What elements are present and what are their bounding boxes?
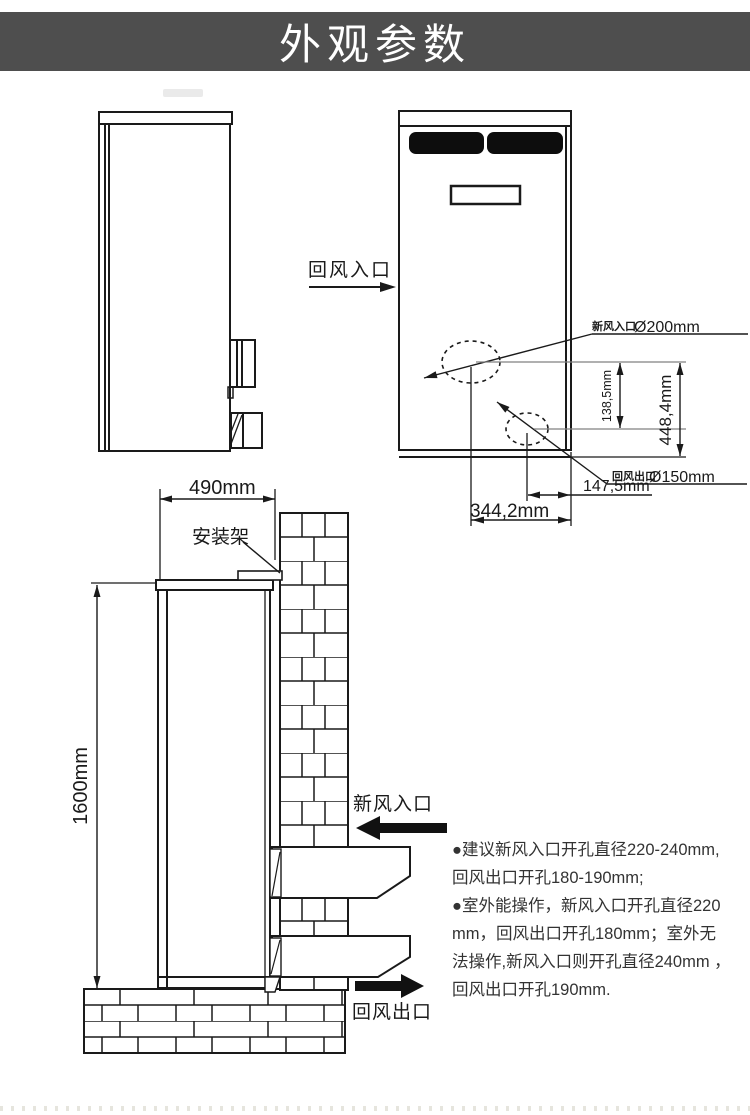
lower-duct <box>272 936 410 977</box>
cutoff-content-strip <box>0 1106 750 1111</box>
note-line-2: 回风出口开孔180-190mm; <box>452 864 750 892</box>
note-line-1: ●建议新风入口开孔直径220-240mm, <box>452 836 750 864</box>
dim-height-label: 1600mm <box>70 747 92 825</box>
install-view-drawing <box>84 513 410 1053</box>
note-line-4: mm，回风出口开孔180mm；室外无 <box>452 920 750 948</box>
dim-hole-gap-label: 138,5mm <box>600 370 614 422</box>
note-line-3: ●室外能操作，新风入口开孔直径220 <box>452 892 750 920</box>
mounting-bracket <box>238 571 282 580</box>
brick-wall <box>280 513 348 990</box>
dim-hole-to-edge-label: 147,5mm <box>583 478 650 495</box>
return-air-inlet-arrowhead <box>380 282 396 292</box>
dim-hole-span-label: 344,2mm <box>470 501 549 522</box>
unit-top-cap <box>156 580 273 590</box>
fresh-air-hole-label-size: Ø200mm <box>634 319 700 336</box>
fresh-air-flow-arrow <box>356 816 447 840</box>
page: 外观参数 <box>0 0 750 1115</box>
grille-left <box>409 132 484 154</box>
fresh-air-hole-label-cn: 新风入口 <box>592 319 636 333</box>
note-line-6: 回风出口开孔190mm. <box>452 976 750 1004</box>
upper-duct <box>272 847 410 898</box>
return-air-inlet-label: 回风入口 <box>308 260 392 281</box>
brick-floor <box>84 989 345 1053</box>
dim-width-label: 490mm <box>189 477 256 499</box>
notes-block: ●建议新风入口开孔直径220-240mm, 回风出口开孔180-190mm; ●… <box>452 836 750 1004</box>
front-view-drawing <box>399 111 571 457</box>
return-air-hole-label-size: Ø150mm <box>649 469 715 486</box>
unit-body <box>158 590 270 988</box>
bracket-label: 安装架 <box>192 526 249 548</box>
note-line-5: 法操作,新风入口则开孔直径240mm ， <box>452 948 750 976</box>
return-air-outlet-label: 回风出口 <box>352 1001 432 1023</box>
fresh-air-inlet-label: 新风入口 <box>353 793 433 815</box>
side-view-drawing <box>99 112 262 451</box>
dim-hole-height-label: 448,4mm <box>656 375 675 446</box>
display-panel <box>451 186 520 204</box>
grille-right <box>487 132 563 154</box>
